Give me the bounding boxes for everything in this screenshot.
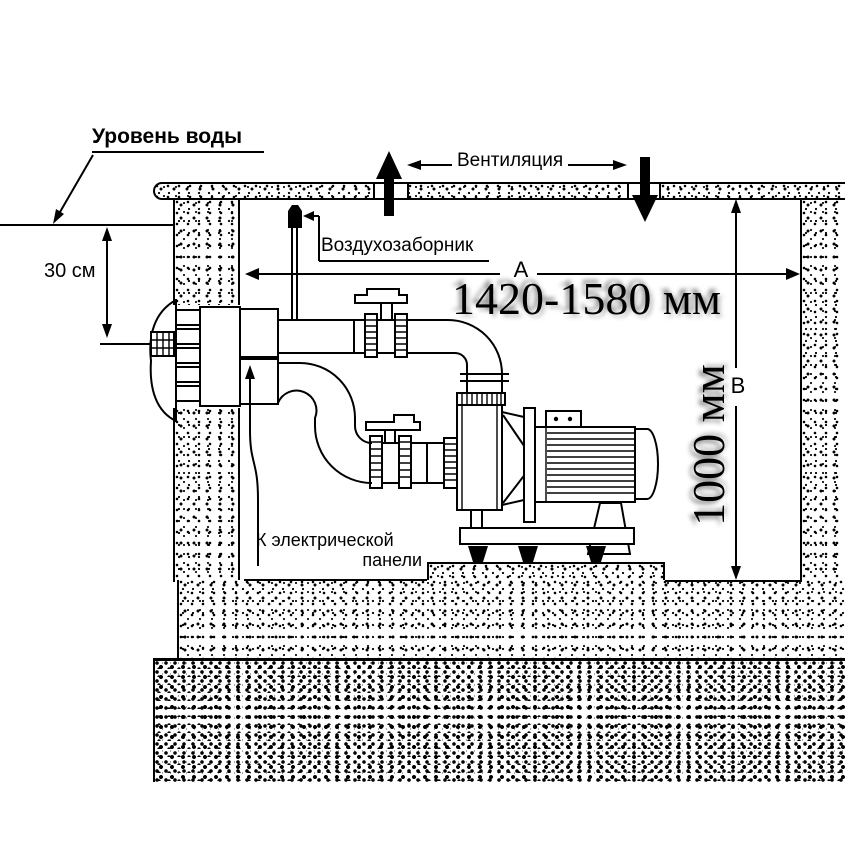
air-intake-head-icon — [288, 205, 302, 228]
pipe-run — [411, 443, 444, 483]
fitting-lug — [176, 310, 200, 325]
vent-right-arrowhead-icon — [613, 160, 627, 170]
flange-ribs — [462, 393, 501, 405]
flange-ribs — [444, 444, 458, 480]
pipe-run — [278, 320, 365, 353]
base-rail — [460, 528, 634, 544]
flange-ribs — [365, 320, 407, 350]
water-level-annotation — [0, 152, 264, 225]
valve-stem — [382, 430, 399, 483]
fitting-lug — [176, 386, 200, 401]
elbow-outer — [407, 320, 502, 393]
pump-top-flange — [457, 393, 505, 405]
valve-stem — [377, 303, 395, 353]
electrical-panel-label-line1: К электрической — [256, 531, 422, 551]
fitting-coupling-lower — [240, 359, 278, 404]
electrical-panel-label: К электрической панели — [256, 531, 422, 571]
lantern-plate — [524, 408, 535, 522]
dim-a-left-arrow-icon — [245, 268, 259, 280]
fitting-lug — [176, 367, 200, 382]
dim-b-up-arrow-icon — [731, 199, 741, 213]
fitting-body — [200, 307, 240, 406]
floor-lines — [244, 580, 802, 581]
dim-30cm-label: 30 см — [44, 260, 96, 282]
terminal-box — [546, 411, 581, 427]
dim-30-down-arrow-icon — [102, 324, 112, 338]
dim-b-down-arrow-icon — [731, 566, 741, 580]
dim-a-value: 1420-1580 мм — [452, 274, 721, 325]
pump-pit-installation-diagram: Уровень воды Вентиляция Воздухозаборник … — [0, 0, 845, 845]
motor-end-cap — [635, 429, 658, 499]
electrical-panel-label-line2: панели — [256, 551, 422, 571]
base-foot-icon — [518, 546, 538, 562]
fitting-lug — [176, 329, 200, 344]
base-foot-icon — [586, 546, 606, 562]
sbend-top — [278, 363, 372, 443]
terminal-bolt-icon — [554, 417, 558, 421]
dim-a-right-arrow-icon — [786, 268, 800, 280]
dim-b-value: 1000 мм — [684, 355, 732, 535]
vent-down-arrow-icon — [632, 157, 658, 222]
valve-flange — [399, 436, 411, 488]
flange-ribs — [370, 442, 411, 477]
wall-fitting — [150, 299, 278, 422]
pit-floor-line — [244, 580, 802, 581]
motor-body — [535, 427, 635, 502]
dim-30cm — [100, 227, 151, 344]
pump-casing — [457, 405, 502, 510]
valve-handle — [355, 289, 407, 303]
valve-handle — [366, 415, 420, 430]
leader-arrowhead-icon — [53, 209, 64, 224]
vent-left-arrowhead-icon — [407, 160, 421, 170]
base-foot-icon — [468, 546, 488, 562]
pump-unit — [457, 405, 658, 562]
suction-pipe-lower — [278, 363, 458, 488]
water-level-label: Уровень воды — [92, 125, 242, 148]
vent-up-arrow-icon — [376, 151, 402, 216]
fitting-lug — [176, 348, 200, 363]
water-level-leader — [60, 155, 93, 212]
air-intake-label: Воздухозаборник — [321, 236, 473, 257]
terminal-bolt-icon — [568, 417, 572, 421]
ventilation-label: Вентиляция — [452, 151, 568, 172]
elbow-inner — [407, 353, 467, 393]
fitting-coupling-upper — [240, 309, 278, 357]
air-intake-arrowhead-icon — [303, 211, 314, 221]
dim-30-up-arrow-icon — [102, 227, 112, 241]
pump-foot — [471, 510, 482, 528]
